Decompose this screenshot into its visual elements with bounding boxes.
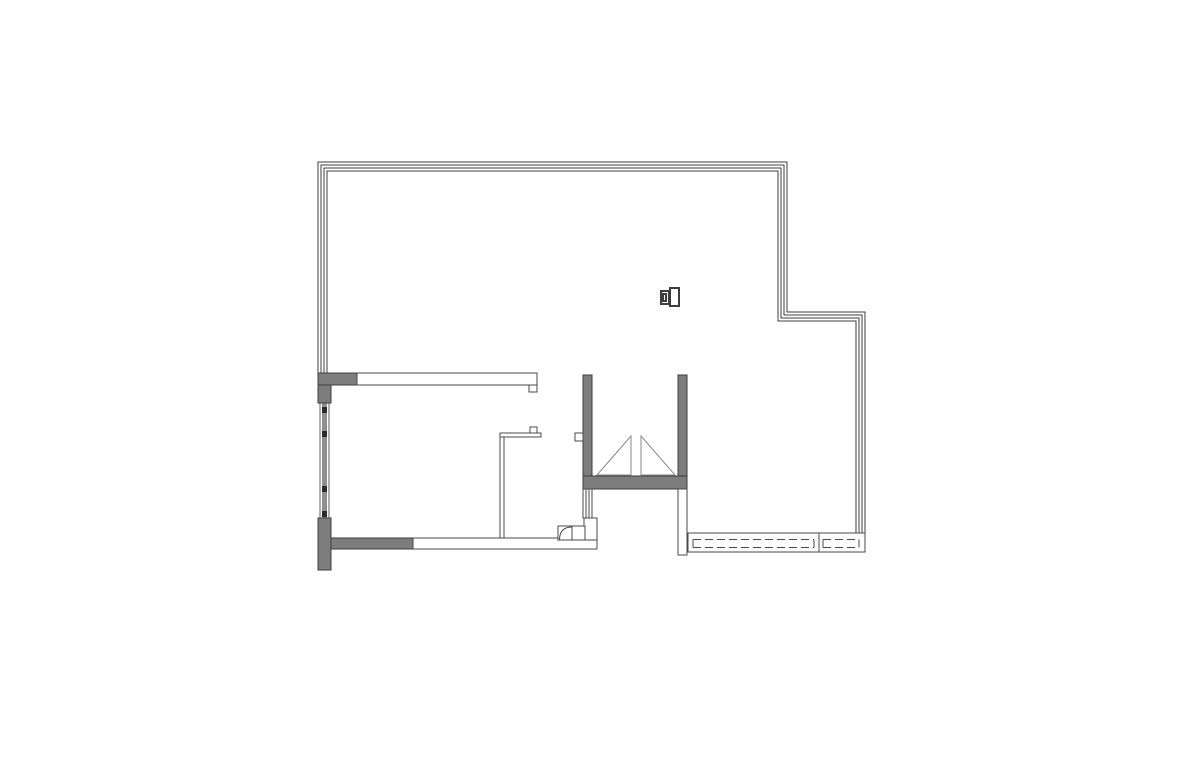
shaft-wall-right [678,375,687,489]
wall-fixture-symbol-part-1 [670,288,679,306]
shaft-triangle-2 [641,436,675,475]
mid-partition-vertical [500,437,504,540]
top-left-wall-vertical [318,385,331,403]
shaft-left-fixture [575,433,583,441]
floor-plan-drawing [0,0,1200,776]
mid-partition-top-tab [530,427,537,433]
top-left-wall-horizontal [318,373,358,385]
balcony-railing-box-2 [819,533,865,552]
bottom-left-wall-horizontal [331,538,413,549]
left-facade-window-marker-4 [322,511,327,517]
below-shaft-wall [584,518,597,540]
left-facade-window-marker-3 [322,486,327,492]
floor-plan-canvas [0,0,1200,776]
shaft-wall-left [583,375,592,489]
top-partition-end-tab [529,385,537,392]
left-facade-window-marker-2 [322,431,327,437]
left-facade-window-marker-1 [322,407,327,413]
bottom-left-wall-vertical [318,518,331,570]
left-facade-window-band [322,403,327,518]
top-partition-wall [357,373,537,385]
balcony-railing-box-1 [688,533,819,552]
mid-partition-horizontal [500,433,541,437]
wall-fixture-symbol-part-3 [663,294,666,301]
shaft-lower-window [583,489,592,518]
shaft-right-lower-wall [678,489,687,555]
shaft-wall-bottom [583,476,687,489]
shaft-triangle-1 [597,436,631,475]
